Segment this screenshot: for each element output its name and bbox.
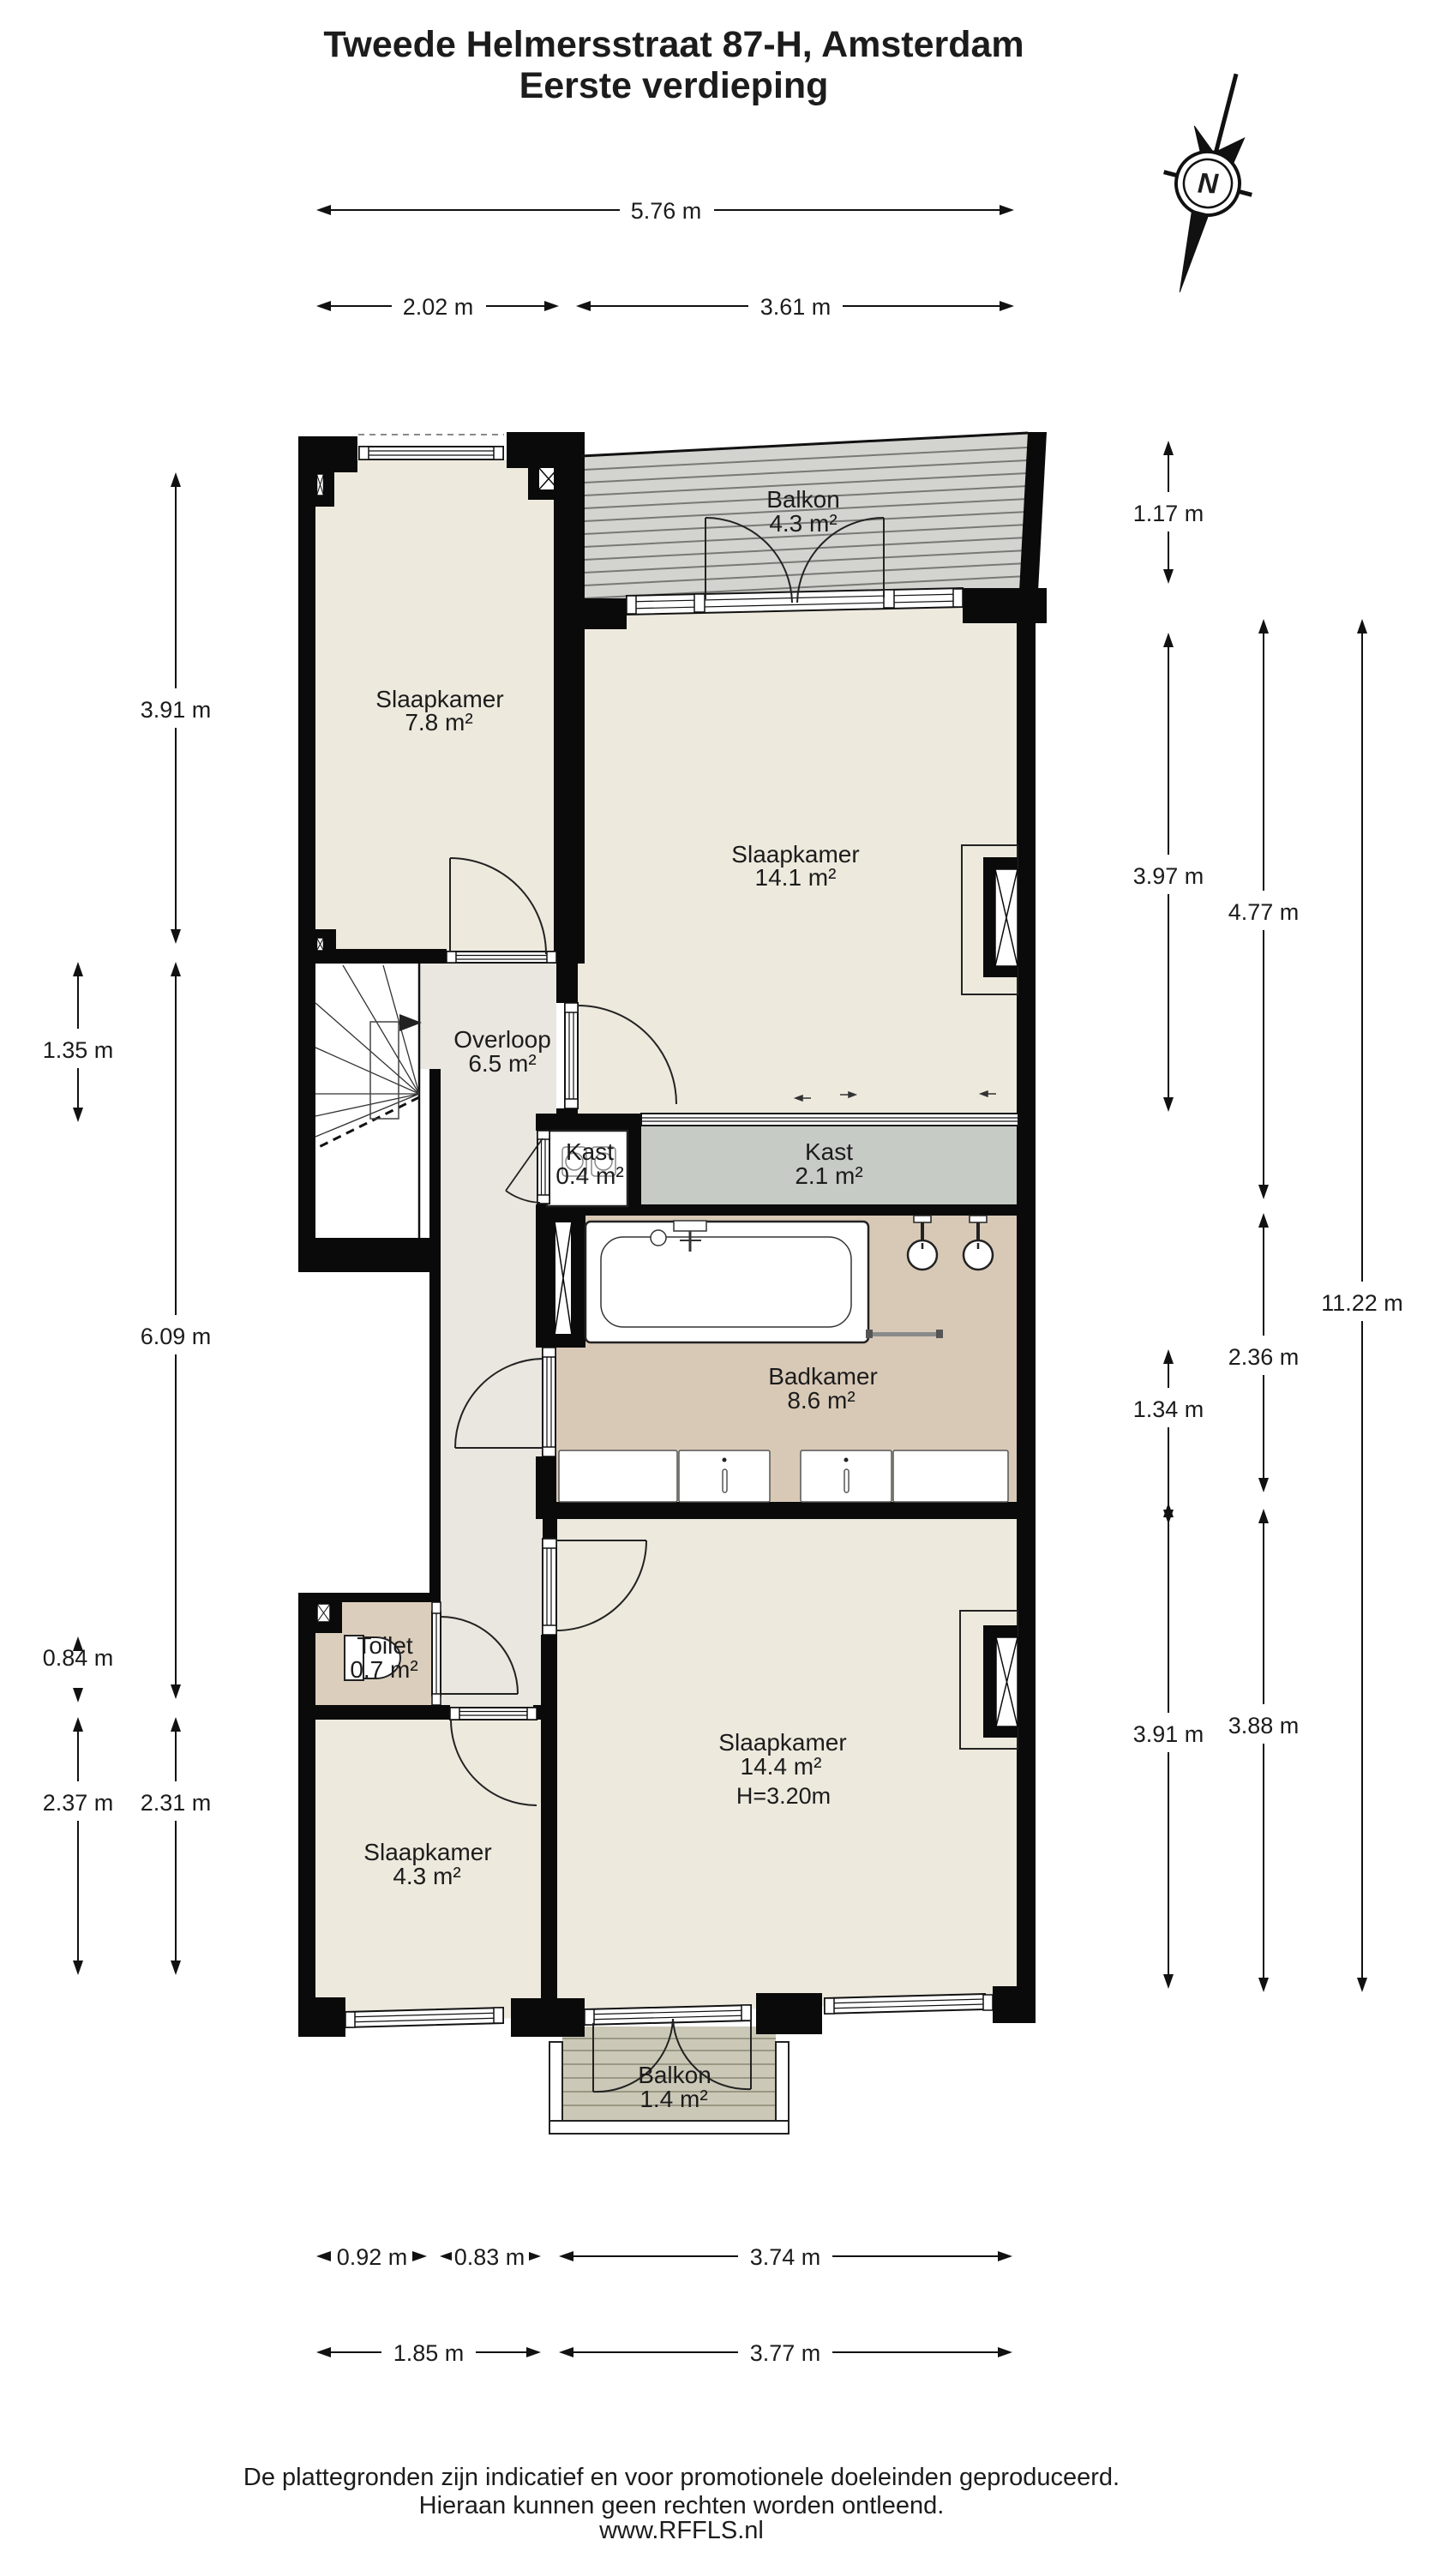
svg-text:2.37 m: 2.37 m bbox=[43, 1790, 114, 1816]
svg-text:7.8 m²: 7.8 m² bbox=[405, 709, 472, 736]
svg-text:Kast: Kast bbox=[805, 1138, 853, 1165]
svg-text:Overloop: Overloop bbox=[453, 1026, 551, 1053]
svg-text:3.74 m: 3.74 m bbox=[750, 2244, 821, 2270]
svg-text:Eerste verdieping: Eerste verdieping bbox=[519, 65, 829, 106]
svg-text:3.77 m: 3.77 m bbox=[750, 2340, 821, 2366]
svg-text:3.97 m: 3.97 m bbox=[1133, 863, 1204, 889]
svg-text:11.22 m: 11.22 m bbox=[1321, 1290, 1403, 1316]
svg-text:Balkon: Balkon bbox=[766, 486, 840, 513]
svg-text:2.31 m: 2.31 m bbox=[141, 1790, 212, 1816]
svg-text:Badkamer: Badkamer bbox=[768, 1363, 878, 1390]
svg-text:Slaapkamer: Slaapkamer bbox=[718, 1729, 846, 1756]
svg-text:6.5 m²: 6.5 m² bbox=[468, 1050, 536, 1077]
svg-text:4.3 m²: 4.3 m² bbox=[769, 510, 837, 537]
svg-text:3.91 m: 3.91 m bbox=[1133, 1721, 1204, 1747]
svg-text:14.4 m²: 14.4 m² bbox=[741, 1753, 822, 1780]
svg-text:1.4 m²: 1.4 m² bbox=[639, 2086, 707, 2112]
svg-text:Slaapkamer: Slaapkamer bbox=[363, 1839, 491, 1865]
svg-text:Tweede Helmersstraat 87-H, Ams: Tweede Helmersstraat 87-H, Amsterdam bbox=[323, 24, 1024, 65]
svg-text:5.76 m: 5.76 m bbox=[631, 198, 702, 224]
svg-text:4.3 m²: 4.3 m² bbox=[393, 1863, 460, 1889]
svg-text:3.91 m: 3.91 m bbox=[141, 697, 212, 723]
svg-text:0.92 m: 0.92 m bbox=[337, 2244, 408, 2270]
svg-text:1.17 m: 1.17 m bbox=[1133, 501, 1204, 526]
svg-text:0.4 m²: 0.4 m² bbox=[555, 1162, 623, 1189]
svg-text:0.84 m: 0.84 m bbox=[43, 1645, 114, 1671]
svg-text:N: N bbox=[1197, 166, 1220, 199]
svg-text:3.88 m: 3.88 m bbox=[1228, 1713, 1300, 1738]
svg-text:1.35 m: 1.35 m bbox=[43, 1037, 114, 1063]
svg-text:Kast: Kast bbox=[566, 1138, 614, 1165]
svg-text:2.02 m: 2.02 m bbox=[403, 294, 474, 320]
svg-text:www.RFFLS.nl: www.RFFLS.nl bbox=[598, 2517, 764, 2544]
svg-text:8.6 m²: 8.6 m² bbox=[787, 1387, 855, 1414]
svg-text:1.34 m: 1.34 m bbox=[1133, 1396, 1204, 1422]
svg-text:0.83 m: 0.83 m bbox=[454, 2244, 525, 2270]
svg-text:6.09 m: 6.09 m bbox=[141, 1324, 212, 1349]
svg-text:3.61 m: 3.61 m bbox=[760, 294, 832, 320]
svg-text:4.77 m: 4.77 m bbox=[1228, 899, 1300, 925]
svg-text:Balkon: Balkon bbox=[638, 2062, 711, 2088]
svg-text:De plattegronden zijn indicati: De plattegronden zijn indicatief en voor… bbox=[243, 2464, 1120, 2491]
svg-text:Hieraan kunnen geen rechten wo: Hieraan kunnen geen rechten worden ontle… bbox=[419, 2492, 945, 2519]
svg-text:14.1 m²: 14.1 m² bbox=[755, 864, 837, 891]
svg-text:H=3.20m: H=3.20m bbox=[736, 1783, 831, 1809]
svg-text:2.1 m²: 2.1 m² bbox=[795, 1162, 862, 1189]
svg-text:2.36 m: 2.36 m bbox=[1228, 1344, 1300, 1370]
svg-text:0.7 m²: 0.7 m² bbox=[350, 1656, 417, 1683]
svg-text:Toilet: Toilet bbox=[357, 1632, 413, 1659]
svg-text:1.85 m: 1.85 m bbox=[393, 2340, 465, 2366]
